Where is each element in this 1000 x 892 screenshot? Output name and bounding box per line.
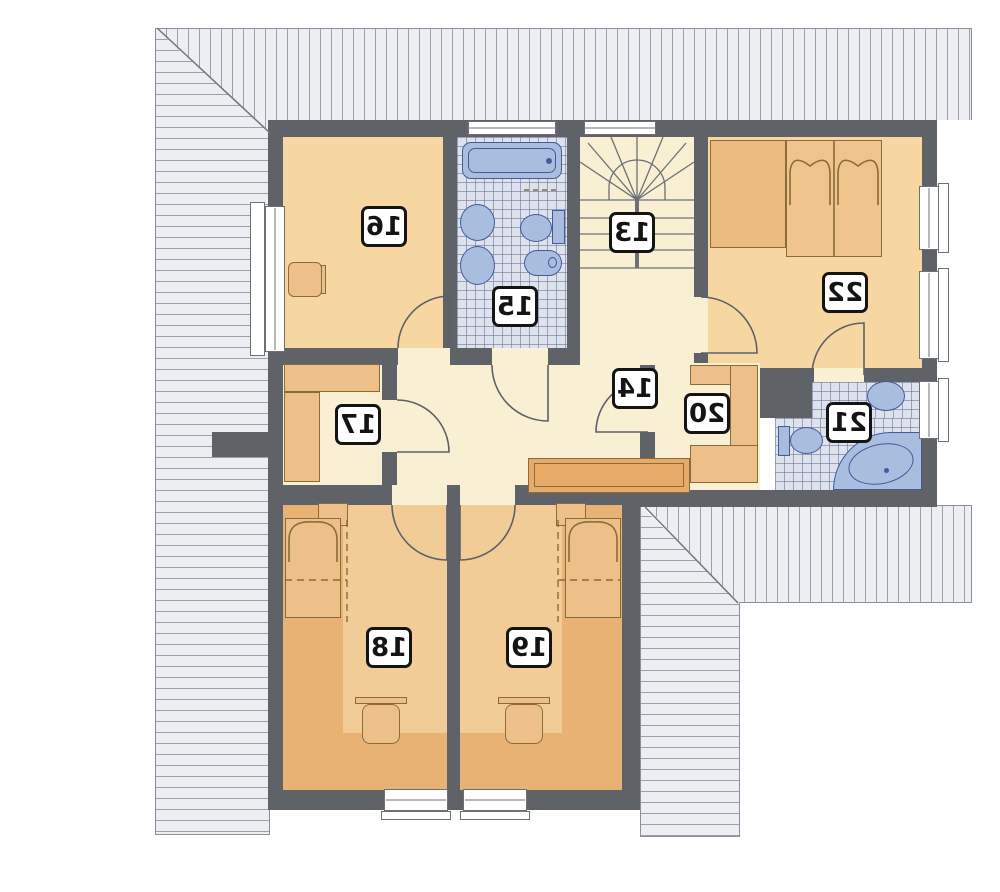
window-room-18-sill [381,811,451,820]
window-bath-21-sill [938,378,949,442]
room-label-17: 17 [335,404,381,445]
room-19-desk [505,704,543,744]
wall-17-right-a [382,363,397,400]
window-room-22-b [919,271,939,359]
hall-sideboard-inner [534,463,684,487]
window-room-22-a-sill [938,183,949,253]
wall-21-top-a [795,368,814,382]
bathtub-inner [468,148,556,173]
room-17-wardrobe-top [284,364,380,392]
room-label-16: 16 [361,206,407,247]
window-bath-21 [919,381,939,439]
door-gap-17 [382,400,397,452]
wall-15-stairs [567,120,580,363]
door-gap-16 [398,348,450,365]
chimney-left [212,432,268,457]
toilet-21-tank [778,426,790,456]
outer-wall-lower-right [622,505,640,810]
room-label-15: 15 [492,286,538,327]
window-room-16-sill [250,202,265,356]
wall-17-right-b [382,452,397,488]
room-label-19: 19 [506,627,552,668]
room-label-20: 20 [684,393,730,434]
wall-16-bottom-b [450,348,492,365]
window-room-18 [384,789,448,811]
wall-16-15 [443,120,457,363]
window-room-16 [265,206,285,352]
room-17-wardrobe-left [284,392,320,482]
room-label-13: 13 [609,212,655,253]
room-19-bed [565,518,621,618]
sink-21 [867,381,905,411]
room-18-desk [362,704,400,744]
wall-18-19 [447,505,460,790]
door-gap-19 [460,485,515,505]
window-room-19 [463,789,527,811]
window-room-22-a [919,186,939,250]
window-room-19-sill [460,811,530,820]
room-22-wardrobe [710,140,786,248]
room-19-desk-top [498,697,550,704]
sink-2 [460,246,495,285]
room-label-18: 18 [366,627,412,668]
room-20-wardrobe-bottom [690,445,758,483]
room-18-bed [285,518,341,618]
bidet-detail [548,257,557,268]
room-18-desk-top [355,697,407,704]
corner-bathtub-drain [884,468,889,473]
wall-stairs-22-upper [694,120,708,297]
room-label-22: 22 [822,272,868,313]
window-bath-15-top [468,121,556,135]
room-label-21: 21 [826,402,872,443]
room-22-double-bed [786,140,882,257]
door-gap-22 [694,297,708,353]
room-19-bottom-strip [460,733,622,790]
door-gap-15 [492,348,548,365]
window-stairs-top [584,121,656,135]
hall-14-floor-b [580,268,694,365]
floor-plan: 13 14 15 16 17 18 19 20 21 22 [0,0,1000,892]
toilet-tank [552,210,565,244]
door-gap-18 [392,485,447,505]
room-16-table-edge [321,265,326,294]
window-room-22-b-sill [938,268,949,362]
room-16-table [288,262,322,297]
roof-area-top [155,28,972,133]
wall-15-bottom [548,348,580,365]
wall-21-top-b [864,368,922,382]
room-label-14: 14 [612,368,658,409]
toilet-21-bowl [790,427,823,454]
bathtub-drain [546,158,552,164]
toilet-bowl [520,214,552,242]
wall-16-bottom-a [268,348,398,365]
sink-1 [460,204,495,241]
outer-wall-bottom [268,790,640,810]
door-gap-21 [814,368,864,382]
